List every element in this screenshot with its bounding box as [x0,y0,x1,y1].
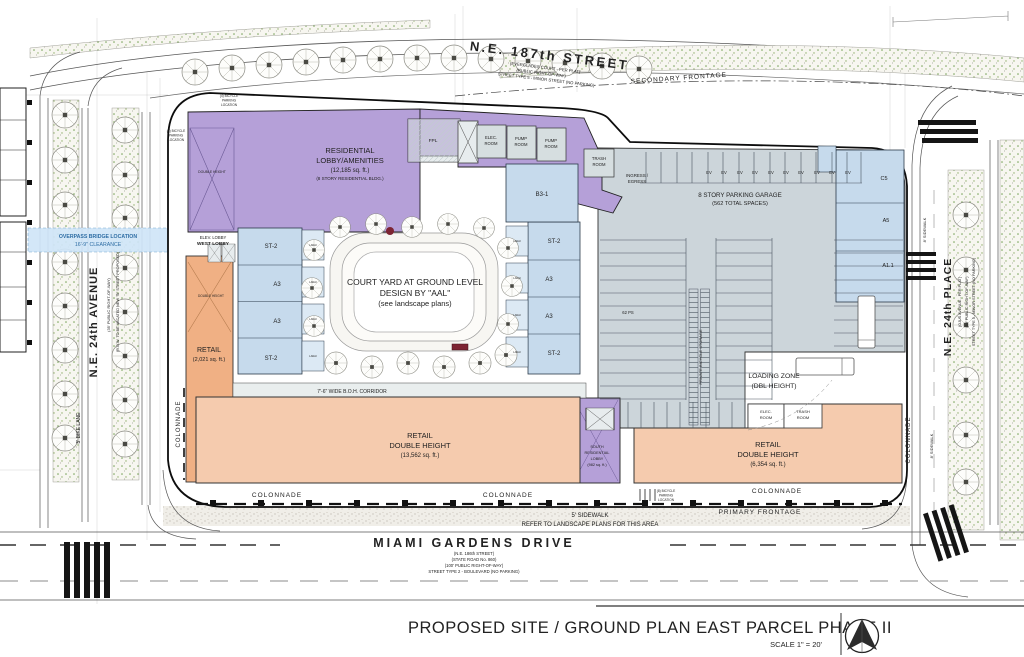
street-left [28,52,196,539]
svg-text:A5: A5 [883,218,890,224]
svg-text:(4) BICYCLE: (4) BICYCLE [167,129,185,133]
svg-text:EV: EV [814,170,820,175]
svg-text:A3: A3 [545,277,553,283]
street-bottom-sub1: (N.E. 186th STREET) [454,551,495,556]
street-right-sub3: STREET TYPE 5 - MINOR STREET (NO PARKING… [972,257,976,346]
svg-text:(4) BICYCLE: (4) BICYCLE [220,94,238,98]
courtyard-l2: DESIGN BY "AAL" [380,288,451,298]
trash-room-l1: TRASH [592,156,606,161]
garage-l2: (562 TOTAL SPACES) [712,201,768,207]
street-bottom-name: MIAMI GARDENS DRIVE [373,536,574,550]
res-lobby-l1: RESIDENTIAL [325,146,374,155]
retail-west-l2: (2,021 sq. ft.) [193,357,226,363]
pump-room-1-l2: ROOM [514,142,528,147]
elec-room-l1: ELEC. [485,135,497,140]
svg-text:EV: EV [845,170,851,175]
retail-sw-l3: (13,562 sq. ft.) [401,453,440,459]
sidewalk-right-label-1: 8' SIDEWALK [922,217,927,242]
svg-text:EV: EV [721,170,727,175]
svg-text:EV: EV [798,170,804,175]
street-left-sub2: (R.O.W. TO BE VACATED NEW "B" STREET PRO… [116,251,120,352]
trash-room-south-l1: TRASH [796,409,810,414]
double-height-label-2: DOUBLE HEIGHT [198,294,224,298]
ingress-l2: EGRESS [628,179,646,184]
street-right-sub1: (OJUS AVENUE - PER PLAT) [958,276,962,327]
neighbor-building-west [0,88,32,352]
south-lobby-l3: LOBBY [591,457,604,461]
site-plan-drawing: N.E. 187th STREET (EVERGLADES COURT - PE… [0,0,1024,657]
svg-text:A3: A3 [273,319,281,325]
bench [452,344,468,350]
svg-text:COLONNADE: COLONNADE [176,400,182,447]
retail-west-l1: RETAIL [197,347,221,354]
garage-ps-label: 62 PS [622,310,634,315]
boh-corridor-label: 7'-6" WIDE B.O.H. CORRIDOR [317,389,387,395]
svg-text:LOCATION: LOCATION [658,498,675,502]
street-left-name: N.E. 24th AVENUE [88,267,100,378]
south-lobby-l1: SOUTH [590,445,604,449]
res-lobby-l3: (12,185 sq. ft.) [331,168,370,174]
fpl-label: FPL [429,138,438,144]
svg-text:COLONNADE: COLONNADE [252,492,302,499]
pump-room-2-l1: PUMP [545,138,557,143]
retail-se-l2: DOUBLE HEIGHT [737,450,799,459]
res-lobby-l2: LOBBY/AMENITIES [316,156,384,165]
svg-text:EV: EV [706,170,712,175]
svg-text:A3: A3 [273,282,281,288]
svg-text:ST-2: ST-2 [548,239,561,245]
sidewalk-bottom-label: 5' SIDEWALK [572,513,609,519]
north-arrow-icon [846,619,879,653]
pump-room-1-l1: PUMP [515,136,527,141]
svg-text:COLONNADE: COLONNADE [906,416,912,463]
svg-text:LANAI: LANAI [513,313,521,317]
courtyard-l3: (see landscape plans) [378,299,452,308]
svg-text:C5: C5 [880,176,887,182]
street-right-name: N.E. 24th PLACE [942,258,954,356]
svg-text:LANAI: LANAI [513,239,521,243]
colonnade-columns [210,500,888,506]
courtyard-l1: COURT YARD AT GROUND LEVEL [347,277,483,287]
res-lobby-l4: (8 STORY RESIDENTIAL BLDG.) [316,176,384,181]
bike-lane-label: 5' BIKE LANE [76,412,82,444]
trash-room-l2: ROOM [592,162,606,167]
svg-text:LANAI: LANAI [309,354,317,358]
planter [386,227,394,235]
svg-text:COLONNADE: COLONNADE [483,492,533,499]
street-bottom-sub3: (100' PUBLIC RIGHT-OF-WAY) [445,563,504,568]
boh-corridor [233,383,586,398]
svg-text:LANAI: LANAI [309,280,317,284]
loading-zone-l1: LOADING ZONE [748,373,800,380]
elec-room-south-l2: ROOM [760,415,772,420]
landscape-note: REFER TO LANDSCAPE PLANS FOR THIS AREA [522,522,659,528]
garage-l1: 8 STORY PARKING GARAGE [698,192,781,199]
svg-text:EV: EV [737,170,743,175]
south-lobby-l2: RESIDENTIAL [585,451,610,455]
svg-text:LANAI: LANAI [513,276,521,280]
retail-se-l1: RETAIL [755,440,781,449]
street-left-sub1: (35' PUBLIC RIGHT-OF-WAY) [106,278,111,332]
trash-room-south-l2: ROOM [797,415,809,420]
street-bottom [0,470,1024,600]
svg-text:ST-2: ST-2 [265,244,278,250]
retail-se-l3: (6,354 sq. ft.) [750,462,785,468]
svg-text:A1.1: A1.1 [882,263,893,269]
ingress-l1: INGRESS / [626,173,649,178]
buildings [184,109,905,506]
street-bottom-sub2: (STATE ROAD No. 860) [452,557,497,562]
retail-sw-l1: RETAIL [407,431,433,440]
svg-text:B3-1: B3-1 [536,192,549,198]
overpass-label-2: 16'-9" CLEARANCE [75,242,122,248]
bike-storage-label: PRIVATE BICYCLE STORAGE [698,329,703,385]
svg-text:EV: EV [768,170,774,175]
svg-text:(8) BICYCLE: (8) BICYCLE [657,489,675,493]
svg-text:PARKING: PARKING [659,494,674,498]
svg-text:A3: A3 [545,314,553,320]
plan-title: PROPOSED SITE / GROUND PLAN EAST PARCEL … [408,619,892,637]
loading-zone-l2: (DBL HEIGHT) [751,383,796,390]
west-lobby-l1: ELEV. LOBBY [200,235,227,240]
bike-rack-symbols [640,489,655,501]
svg-text:LOCATION: LOCATION [168,138,185,142]
svg-text:PARKING: PARKING [169,134,184,138]
svg-text:COLONNADE: COLONNADE [752,488,802,495]
svg-text:LANAI: LANAI [309,317,317,321]
retail-south-west [196,397,580,483]
title-block: PROPOSED SITE / GROUND PLAN EAST PARCEL … [408,606,1024,655]
sidewalk-right-label-2: 8' SIDEWALK [929,433,934,458]
street-bottom-sub4: STREET TYPE 2 - BOULEVARD (NO PARKING) [428,569,520,574]
site-plan-canvas: N.E. 187th STREET (EVERGLADES COURT - PE… [0,0,1024,657]
svg-text:EV: EV [829,170,835,175]
retail-sw-l2: DOUBLE HEIGHT [389,441,451,450]
pump-room-2-l2: ROOM [544,144,558,149]
west-lobby-l2: WEST LOBBY [197,241,230,247]
overpass-label-1: OVERPASS BRIDGE LOCATION [59,234,137,240]
elec-room-south-l1: ELEC. [760,409,772,414]
svg-text:LANAI: LANAI [513,350,521,354]
elec-room-l2: ROOM [484,141,498,146]
svg-text:LANAI: LANAI [309,243,317,247]
svg-text:ST-2: ST-2 [548,351,561,357]
double-height-label-1: DOUBLE HEIGHT [198,170,226,174]
svg-text:ST-2: ST-2 [265,356,278,362]
primary-frontage-label: PRIMARY FRONTAGE [719,509,802,516]
svg-text:LOCATION: LOCATION [221,103,238,107]
svg-text:PARKING: PARKING [222,99,237,103]
svg-text:EV: EV [752,170,758,175]
street-right [906,86,1024,597]
svg-text:EV: EV [783,170,789,175]
south-lobby-l4: (982 sq. ft.) [587,463,607,467]
plan-scale: SCALE 1" = 20' [770,640,822,649]
street-right-sub2: (50' PUBLIC RIGHT-OF-WAY) [965,276,969,328]
